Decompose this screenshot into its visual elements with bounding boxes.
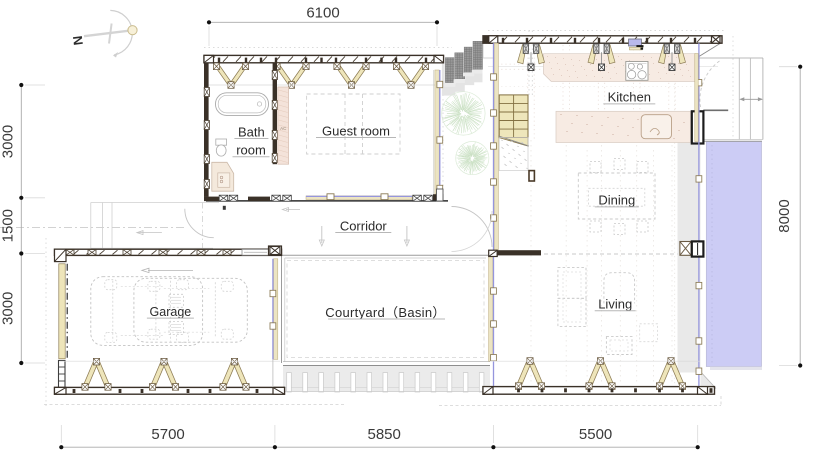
svg-text:Living: Living [598, 297, 632, 312]
svg-text:1500: 1500 [0, 209, 17, 242]
svg-text:3000: 3000 [0, 125, 17, 158]
svg-text:8000: 8000 [776, 199, 793, 232]
svg-text:3000: 3000 [0, 292, 17, 325]
svg-text:N: N [70, 35, 86, 46]
svg-text:AC: AC [280, 126, 287, 131]
svg-text:Guest room: Guest room [322, 123, 390, 138]
svg-text:Corridor: Corridor [340, 218, 388, 233]
svg-text:Courtyard（Basin）: Courtyard（Basin） [325, 305, 445, 320]
svg-text:Kitchen: Kitchen [608, 90, 651, 105]
svg-text:room: room [236, 143, 266, 158]
svg-text:6100: 6100 [306, 5, 339, 22]
svg-text:Dining: Dining [598, 193, 635, 208]
svg-text:5500: 5500 [579, 426, 612, 443]
svg-text:Bath: Bath [238, 124, 265, 139]
svg-text:Garage: Garage [150, 305, 192, 319]
svg-text:5700: 5700 [151, 426, 184, 443]
svg-text:5850: 5850 [368, 426, 401, 443]
